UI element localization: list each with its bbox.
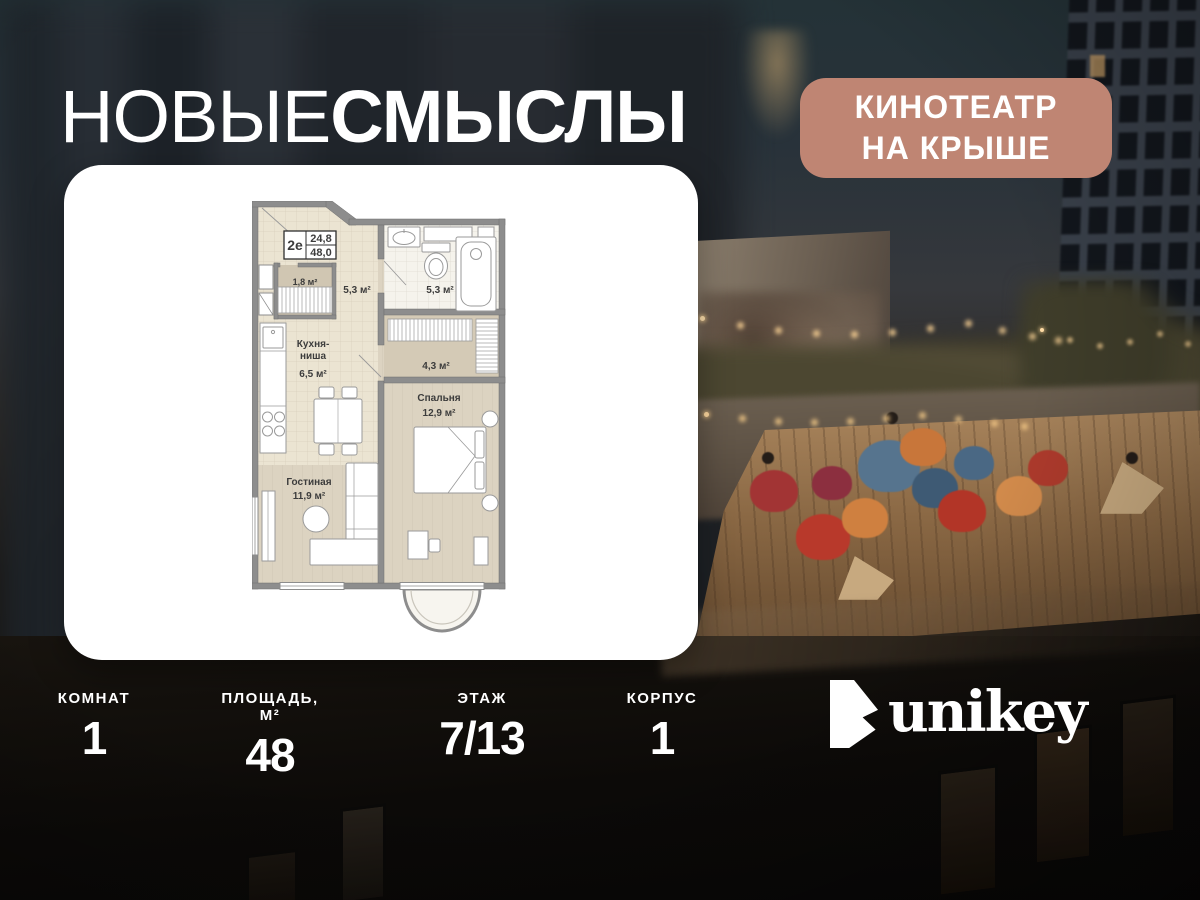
bedroom-area: 12,9 м²: [423, 408, 457, 419]
kitchen-area: 6,5 м²: [299, 369, 327, 380]
dark-building-facade: [0, 636, 1200, 900]
string-lights: [1040, 328, 1044, 332]
balcony: [404, 589, 480, 631]
stat-rooms: КОМНАТ 1: [58, 690, 130, 765]
bathroom-area: 5,3 м²: [426, 285, 454, 296]
stat-value: 7/13: [439, 711, 525, 765]
badge-line-1: КИНОТЕАТР: [855, 89, 1058, 126]
lit-tower-windows: [1090, 55, 1105, 77]
facade-window: [246, 849, 298, 900]
unit-info-box: 2е 24,8 48,0: [284, 231, 336, 259]
facade-window: [1120, 695, 1176, 840]
kitchen-name-1: Кухня-: [297, 339, 330, 350]
project-title: НОВЫЕСМЫСЛЫ: [60, 80, 687, 154]
stat-value: 1: [58, 711, 130, 765]
brand-logo: unikey: [830, 680, 1086, 748]
facade-window: [340, 803, 386, 900]
kitchen-name-2: ниша: [300, 351, 327, 362]
bean-bag: [938, 490, 986, 532]
person-silhouette: [1126, 452, 1138, 464]
unit-type: 2е: [287, 237, 303, 253]
unit-area-total: 48,0: [310, 247, 331, 259]
string-lights: [704, 412, 709, 417]
stat-value: 48: [221, 728, 318, 782]
floorplan-card: 2е 24,8 48,0 1,8 м² 5,3 м² 5,3 м² 4,3 м²…: [64, 165, 698, 660]
facade-window: [938, 764, 998, 897]
bean-bag: [954, 446, 994, 480]
rooftop-cinema-badge: КИНОТЕАТР НА КРЫШЕ: [800, 78, 1112, 178]
bean-bag: [900, 428, 946, 466]
bedroom-name: Спальня: [417, 393, 460, 404]
stat-label: ПЛОЩАДЬ, М²: [221, 690, 318, 724]
key-icon: [830, 680, 878, 748]
badge-line-2: НА КРЫШЕ: [862, 130, 1051, 167]
stat-label: ЭТАЖ: [439, 690, 525, 707]
stat-area: ПЛОЩАДЬ, М² 48: [221, 690, 318, 782]
stat-label: КОРПУС: [627, 690, 698, 707]
hall-area: 5,3 м²: [343, 285, 371, 296]
wardrobe-area: 1,8 м²: [293, 277, 318, 287]
title-bold: СМЫСЛЫ: [330, 75, 687, 158]
floorplan-drawing: 2е 24,8 48,0 1,8 м² 5,3 м² 5,3 м² 4,3 м²…: [252, 201, 510, 637]
person-silhouette: [886, 412, 898, 424]
unit-area-living: 24,8: [310, 233, 331, 245]
closet-area: 4,3 м²: [422, 361, 450, 372]
living-name: Гостиная: [286, 477, 331, 488]
stat-label: КОМНАТ: [58, 690, 130, 707]
stat-floor: ЭТАЖ 7/13: [439, 690, 525, 765]
stat-value: 1: [627, 711, 698, 765]
brand-name: unikey: [888, 680, 1086, 744]
stat-building: КОРПУС 1: [627, 690, 698, 765]
bean-bag: [812, 466, 852, 500]
person-silhouette: [762, 452, 774, 464]
living-area: 11,9 м²: [293, 491, 326, 502]
wardrobe-rail: [278, 287, 332, 313]
title-thin: НОВЫЕ: [60, 75, 330, 158]
bean-bag: [1028, 450, 1068, 486]
promo-poster: НОВЫЕСМЫСЛЫ КИНОТЕАТР НА КРЫШЕ: [0, 0, 1200, 900]
string-lights: [700, 316, 705, 321]
bean-bag: [750, 470, 798, 512]
bean-bag: [842, 498, 888, 538]
